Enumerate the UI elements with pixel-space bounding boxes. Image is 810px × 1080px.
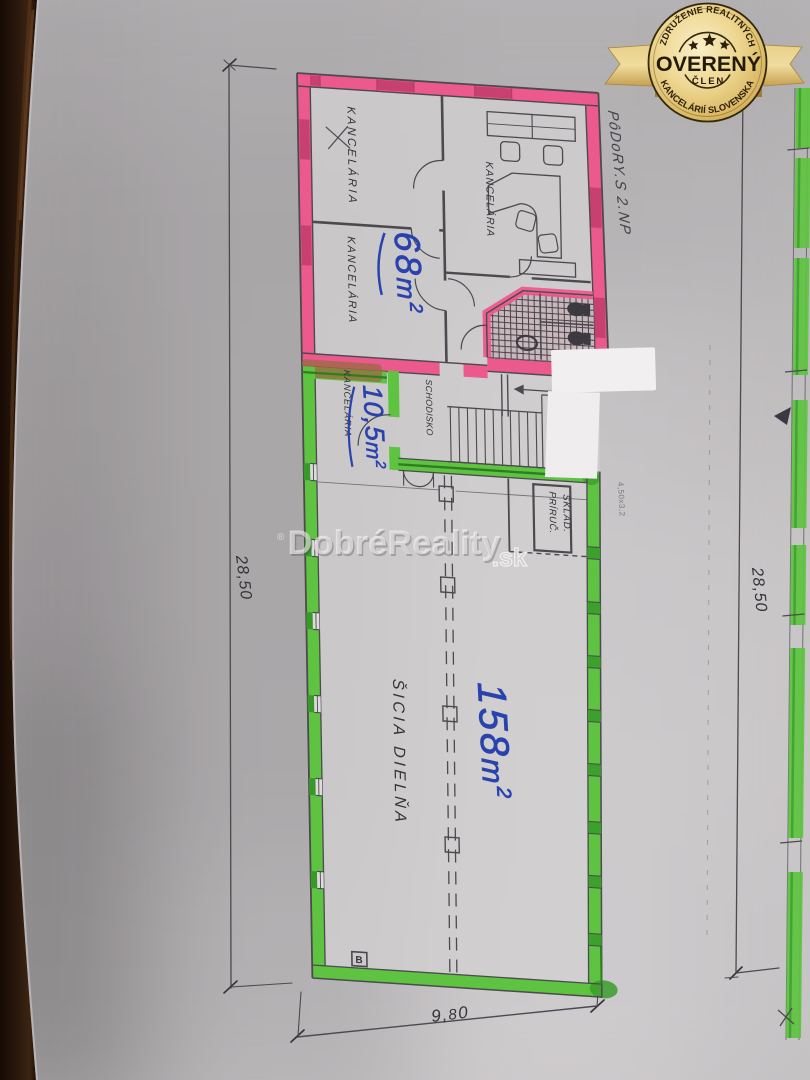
- svg-text:ČLEN: ČLEN: [692, 75, 725, 87]
- svg-text:KANCELÁRIA: KANCELÁRIA: [483, 161, 497, 237]
- svg-text:KANCELÁRIA: KANCELÁRIA: [344, 106, 359, 206]
- svg-text:PRÍRUČ.: PRÍRUČ.: [546, 491, 558, 534]
- svg-text:DobréReality: DobréReality: [288, 524, 501, 562]
- svg-text:SKLAD.: SKLAD.: [560, 494, 572, 533]
- svg-text:SCHODISKO: SCHODISKO: [424, 379, 435, 436]
- svg-text:4,50x3,2: 4,50x3,2: [616, 482, 627, 517]
- svg-text:KANCELÁRIA: KANCELÁRIA: [345, 236, 359, 325]
- svg-text:ŠICIA DIELŇA: ŠICIA DIELŇA: [389, 678, 410, 826]
- svg-text:B: B: [355, 955, 362, 966]
- svg-text:.sk: .sk: [492, 544, 527, 572]
- svg-text:OVERENÝ: OVERENÝ: [656, 51, 761, 76]
- svg-text:®: ®: [277, 532, 285, 543]
